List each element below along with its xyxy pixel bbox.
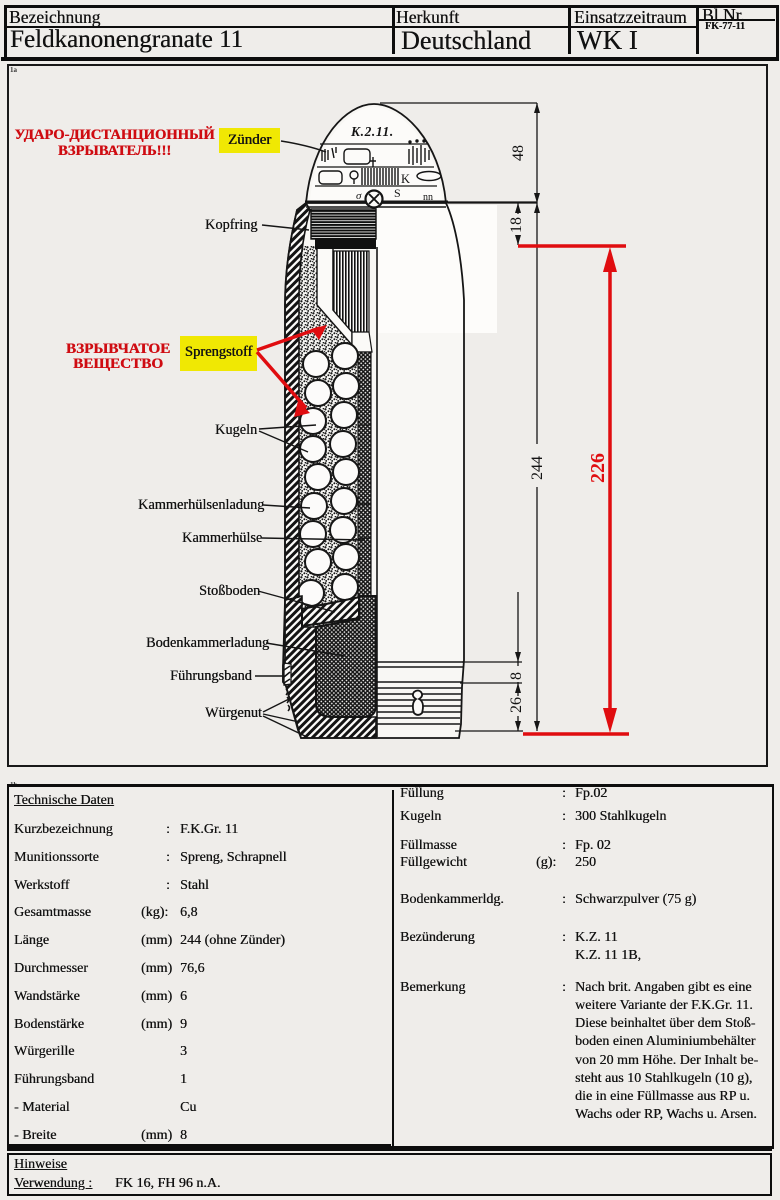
svg-text:48: 48	[510, 145, 527, 161]
svg-text:K.2.11.: K.2.11.	[350, 124, 394, 139]
svg-text:S: S	[394, 186, 401, 200]
svg-text:nn: nn	[423, 192, 433, 203]
svg-text:26: 26	[508, 697, 525, 713]
svg-text:18: 18	[508, 217, 525, 233]
svg-text:244: 244	[529, 456, 546, 480]
svg-text:226: 226	[587, 453, 609, 483]
svg-text:σ: σ	[356, 190, 362, 202]
svg-text:8: 8	[508, 672, 525, 680]
svg-text:K: K	[401, 172, 410, 186]
